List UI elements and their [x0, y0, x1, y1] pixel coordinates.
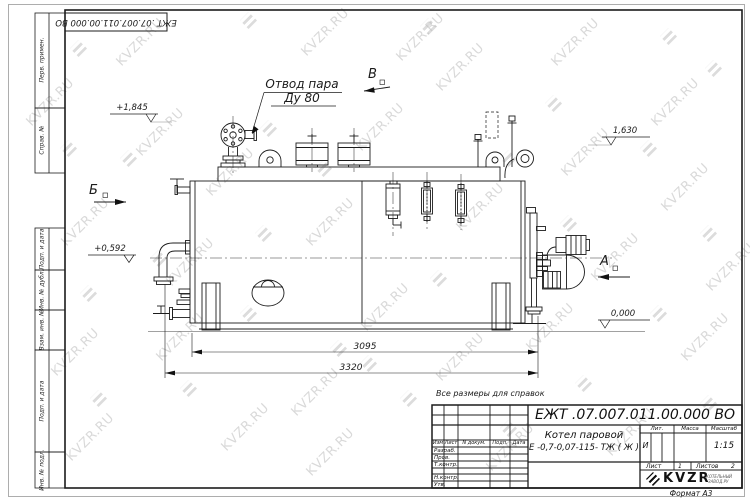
top-stamp-doc-number: ЕЖТ .07.007.011.00.000 ВО: [65, 13, 167, 31]
sheet-value: 1: [678, 463, 682, 470]
steam-outlet-valve: [221, 123, 257, 167]
row-tkontr: Т.контр.: [434, 462, 458, 468]
side-column-podp-data-1: Подп. и дата: [39, 229, 46, 270]
sheets-label: Листов: [696, 463, 718, 470]
rear-connections: [513, 208, 551, 324]
view-marker-v: В: [368, 67, 377, 82]
top-small-fittings: [170, 112, 534, 195]
scale-value: 1:15: [706, 441, 742, 451]
reference-note: Все размеры для справок: [436, 389, 545, 398]
company-sub-line2: ЗАВОД.РУ: [708, 479, 728, 484]
sheet-label: Лист: [646, 463, 661, 470]
view-marker-a: А: [600, 254, 609, 269]
title-doc-number: ЕЖТ .07.007.011.00.000 ВО: [528, 406, 742, 425]
side-column-podp-data-2: Подп. и дата: [39, 381, 46, 422]
steam-outlet-label-line1: Отвод пара: [262, 77, 342, 91]
dimension-3320: 3320: [331, 363, 371, 373]
steam-outlet-label-line2: Ду 80: [262, 91, 342, 105]
row-nkontr: Н.контр.: [434, 475, 459, 481]
company-logo-text: KVZR: [663, 471, 711, 486]
header-izm: Изм: [432, 440, 444, 446]
boiler-shell: [148, 167, 645, 332]
sheets-value: 2: [731, 463, 735, 470]
safety-valves: [296, 134, 370, 167]
side-column-inv-podl: Инв. № подл.: [39, 449, 46, 490]
level-1845: +1,845: [108, 103, 156, 113]
side-column-vzam-inv: Взам. инв. №: [39, 310, 46, 351]
header-n-dokum: N докум.: [458, 440, 490, 446]
lit-value: И: [640, 441, 651, 450]
product-name-line1: Котел паровой: [528, 430, 640, 441]
massa-header: Масса: [674, 426, 706, 432]
side-column-inv-dubl: Инв. № дубл.: [39, 269, 46, 310]
burner: [537, 236, 590, 290]
row-utv: Утв.: [434, 482, 446, 488]
level-0592: +0,592: [86, 244, 134, 254]
row-prov: Пров.: [434, 455, 450, 461]
level-marks: [88, 114, 650, 328]
side-column-perv-primen: Перв. примен.: [39, 37, 46, 82]
drawing-sheet: KVZR.RUKVZR.RUKVZR.RUKVZR.RUKVZR.RUKVZR.…: [0, 0, 750, 500]
level-0000: 0,000: [600, 309, 646, 319]
product-name-line2: Е -0,7-0,07-115- ТЖ ( Ж ): [528, 443, 640, 453]
dimension-3095: 3095: [345, 342, 385, 352]
level-1630: 1,630: [602, 126, 648, 136]
header-podp: Подп.: [490, 440, 510, 446]
centerlines: [150, 116, 612, 258]
front-fittings: [153, 241, 190, 320]
format-label: Формат А3: [640, 489, 742, 498]
row-razrab: Разраб.: [434, 448, 456, 454]
header-data: Дата: [510, 440, 528, 446]
header-list: Лист: [444, 440, 458, 446]
masshtab-header: Масштаб: [706, 426, 742, 432]
manhole: [252, 280, 284, 306]
water-column-and-gauges: [386, 181, 467, 229]
side-column-sprav-n: Справ. №: [39, 125, 46, 154]
lit-header: Лит.: [640, 426, 674, 432]
view-marker-b: Б: [89, 183, 98, 198]
